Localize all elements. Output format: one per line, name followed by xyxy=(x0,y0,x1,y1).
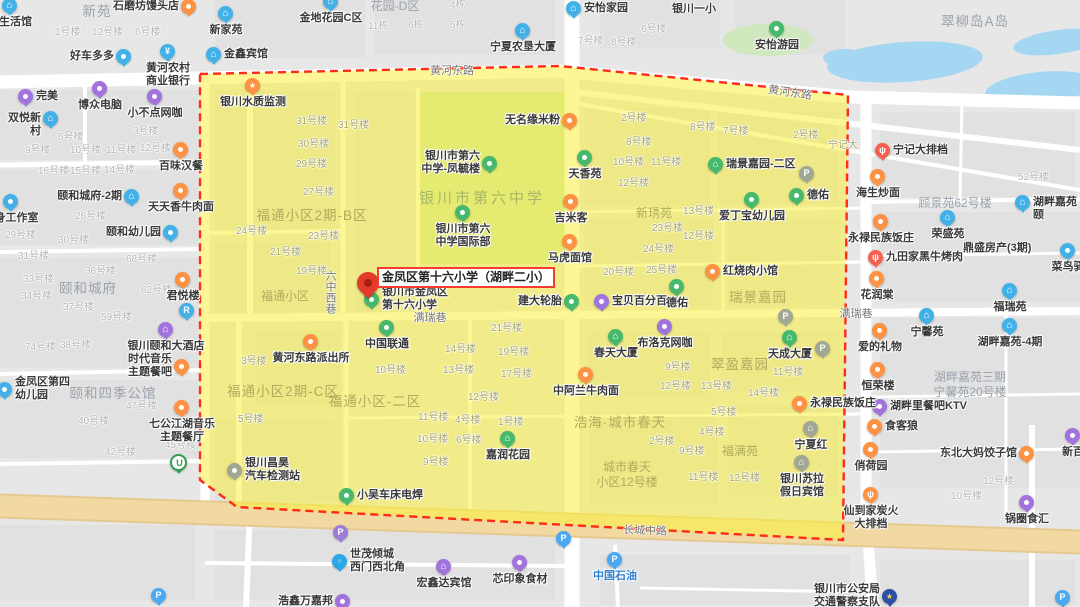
selected-place-label[interactable]: 金凤区第十六小学（湖畔二小） xyxy=(377,267,555,288)
marker-layer: 金凤区第十六小学（湖畔二小） xyxy=(0,0,1080,607)
map-canvas[interactable]: 1号楼12号楼6号楼4栋11栋6栋5栋7号楼8号楼6号楼银川一小鼎盛房产(3期)… xyxy=(0,0,1080,607)
